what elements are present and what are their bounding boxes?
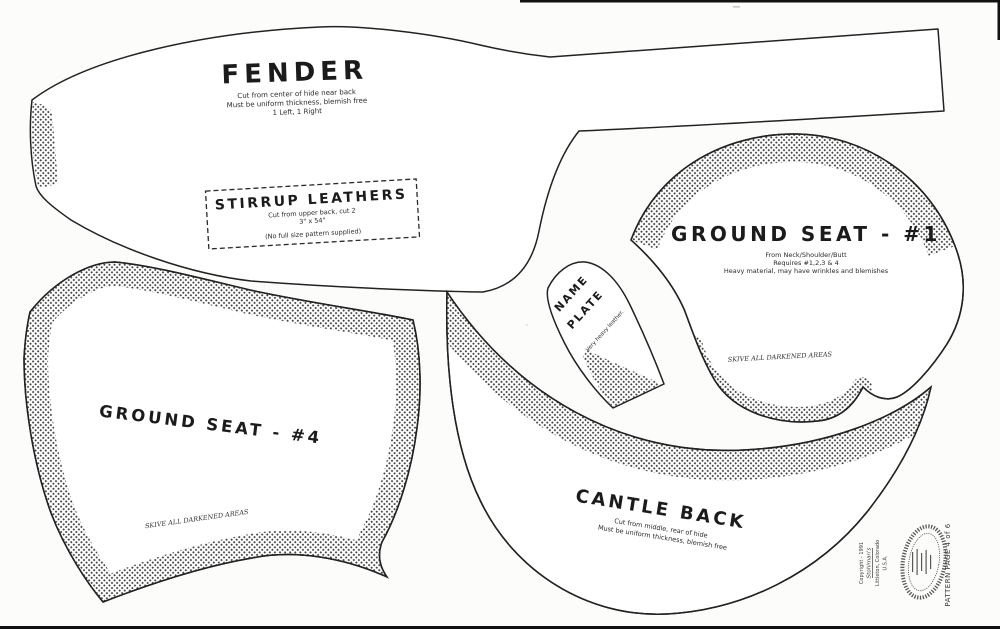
copyright-block: Copyright - 1991 Stohlman's Littleton, C… <box>859 540 889 586</box>
copyright-line-4: U.S.A. <box>883 555 889 570</box>
maker-stamp <box>897 523 951 601</box>
name-plate-piece: NAME PLATE Very heavy leather. <box>547 262 664 408</box>
pattern-drawing: FENDER Cut from center of hide near back… <box>0 0 1000 629</box>
ground-seat-1-title: GROUND SEAT - #1 <box>671 222 941 246</box>
stamp-text-lines <box>912 549 931 575</box>
ground-seat-1-note-2: Requires #1,2,3 & 4 <box>773 259 839 267</box>
stamp-outer-ring <box>897 523 951 601</box>
ground-seat-1-note-3: Heavy material, may have wrinkles and bl… <box>724 267 889 275</box>
scan-edge-top <box>520 0 1000 3</box>
ground-seat-1-note-1: From Neck/Shoulder/Butt <box>765 251 847 259</box>
copyright-underline <box>872 548 873 578</box>
fender-title: FENDER <box>221 55 369 90</box>
page-label: PATTERN PAGE 4 of 6 <box>944 523 952 606</box>
stirrup-leathers-box: STIRRUP LEATHERS Cut from upper back, cu… <box>206 179 420 249</box>
ground-seat-4-piece: GROUND SEAT - #4 SKIVE ALL DARKENED AREA… <box>24 262 420 602</box>
scanned-pattern-sheet: FENDER Cut from center of hide near back… <box>0 0 1000 629</box>
stirrup-leathers-note-2: 3" x 54" <box>299 216 326 226</box>
ground-seat-1-piece: GROUND SEAT - #1 From Neck/Shoulder/Butt… <box>631 134 963 422</box>
copyright-line-1: Copyright - 1991 <box>859 542 865 584</box>
copyright-line-3: Littleton, Colorado <box>875 540 881 586</box>
copyright-line-2: Stohlman's <box>867 548 873 579</box>
